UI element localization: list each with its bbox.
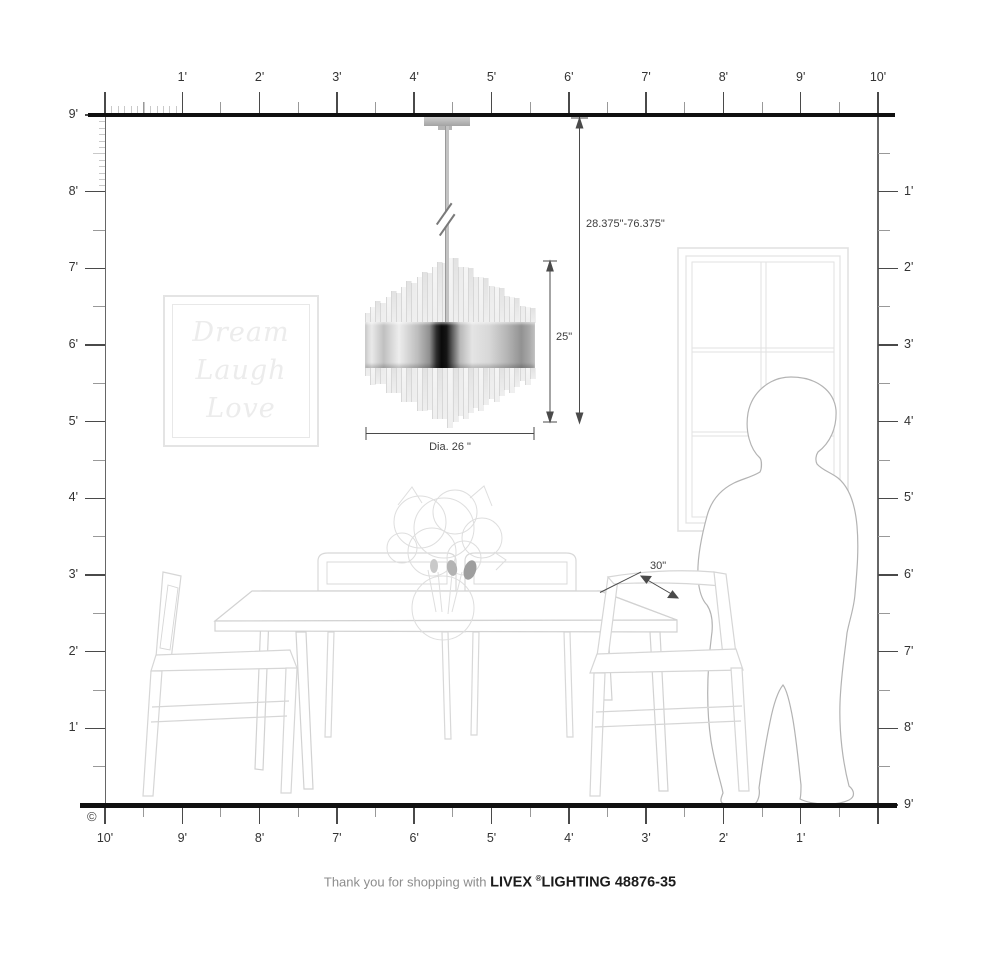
brand-name: LIVEX — [490, 874, 532, 890]
ruler-label: 8' — [240, 831, 280, 845]
ruler-label: 3' — [626, 831, 666, 845]
ruler-label: 1' — [52, 720, 78, 734]
ruler-label: 6' — [52, 337, 78, 351]
ruler-label: 5' — [472, 831, 512, 845]
ruler-label: 4' — [549, 831, 589, 845]
footer-prefix: Thank you for shopping with — [324, 874, 487, 889]
ruler-label: 4' — [394, 70, 434, 84]
ruler-label: 9' — [52, 107, 78, 121]
ruler-label: 6' — [549, 70, 589, 84]
ruler-label: 9' — [162, 831, 202, 845]
ruler-label: 3' — [904, 337, 913, 351]
diameter-label: Dia. 26 " — [420, 441, 480, 453]
ruler-label: 9' — [781, 70, 821, 84]
ruler-label: 8' — [52, 184, 78, 198]
floor-line — [80, 803, 897, 808]
ruler-label: 3' — [317, 70, 357, 84]
ruler-label: 3' — [52, 567, 78, 581]
hang-height-dimension — [571, 117, 588, 423]
ruler-label: 8' — [703, 70, 743, 84]
table-depth-label: 30" — [650, 560, 666, 572]
fixture-height-dimension — [543, 261, 557, 422]
ruler-label: 7' — [626, 70, 666, 84]
ruler-label: 6' — [904, 567, 913, 581]
ruler-label: 4' — [904, 414, 913, 428]
diameter-dimension — [366, 427, 534, 440]
table-depth-dimension — [600, 572, 678, 598]
ruler-label: 9' — [904, 797, 913, 811]
ruler-label: 7' — [52, 260, 78, 274]
copyright-symbol: © — [87, 809, 97, 824]
ruler-label: 1' — [781, 831, 821, 845]
ruler-label: 2' — [240, 70, 280, 84]
ruler-label: 1' — [904, 184, 913, 198]
hang-range-label: 28.375"-76.375" — [586, 218, 665, 230]
ruler-label: 7' — [317, 831, 357, 845]
ruler-label: 5' — [472, 70, 512, 84]
ruler-label: 1' — [162, 70, 202, 84]
ruler-label: 6' — [394, 831, 434, 845]
ruler-label: 4' — [52, 490, 78, 504]
ruler-label: 5' — [52, 414, 78, 428]
ruler-label: 2' — [703, 831, 743, 845]
ruler-label: 10' — [85, 831, 125, 845]
ruler-label: 2' — [904, 260, 913, 274]
ruler-label: 5' — [904, 490, 913, 504]
scale-diagram: Dream Laugh Love — [0, 0, 1000, 953]
ruler-label: 8' — [904, 720, 913, 734]
model-number: LIGHTING 48876-35 — [542, 874, 677, 890]
ruler-label: 7' — [904, 644, 913, 658]
footer-note: Thank you for shopping with LIVEX ®LIGHT… — [0, 874, 1000, 890]
fixture-height-label: 25" — [556, 331, 572, 343]
ceiling-line — [88, 113, 895, 117]
ruler-label: 2' — [52, 644, 78, 658]
dimension-lines — [0, 0, 1000, 953]
ruler-label: 10' — [858, 70, 898, 84]
